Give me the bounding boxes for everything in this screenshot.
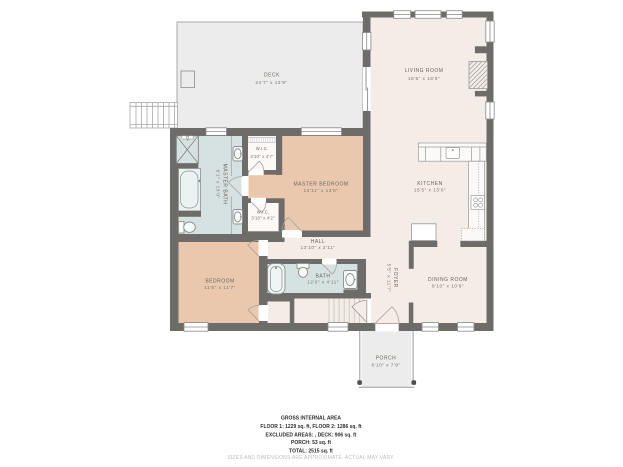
svg-text:BATH: BATH (316, 274, 331, 280)
svg-text:11'8" x 11'7": 11'8" x 11'7" (204, 285, 235, 291)
svg-text:3'10" x 4'7": 3'10" x 4'7" (250, 154, 274, 159)
svg-text:PORCH: 53 sq. ft: PORCH: 53 sq. ft (291, 440, 331, 446)
svg-text:BEDROOM: BEDROOM (205, 279, 234, 285)
svg-text:LIVING ROOM: LIVING ROOM (405, 68, 444, 74)
svg-text:FOYER: FOYER (392, 268, 398, 288)
svg-text:SIZES AND DIMENSIONS ARE APPRO: SIZES AND DIMENSIONS ARE APPROXIMATE, AC… (227, 455, 394, 461)
svg-text:MASTER BEDROOM: MASTER BEDROOM (293, 182, 348, 188)
svg-text:12'0" x 4'11": 12'0" x 4'11" (307, 280, 339, 286)
svg-text:HALL: HALL (311, 239, 326, 245)
svg-text:15'5" x 16'9": 15'5" x 16'9" (408, 76, 440, 82)
svg-text:9'1" x 13'0": 9'1" x 13'0" (215, 169, 221, 198)
svg-text:DECK: DECK (264, 73, 280, 79)
svg-text:3'10" x 4'2": 3'10" x 4'2" (251, 216, 275, 221)
svg-text:24'7" x 13'9": 24'7" x 13'9" (255, 80, 287, 86)
svg-text:5'5" x 11'7": 5'5" x 11'7" (386, 264, 392, 293)
svg-text:MASTER BATH: MASTER BATH (222, 164, 228, 205)
svg-text:W.I.C.: W.I.C. (257, 210, 270, 215)
svg-text:13'11" x 13'0": 13'11" x 13'0" (304, 188, 339, 194)
svg-text:TOTAL: 2515 sq. ft: TOTAL: 2515 sq. ft (289, 448, 333, 454)
svg-text:15'5" x 13'0": 15'5" x 13'0" (414, 188, 446, 194)
svg-text:GROSS INTERNAL AREA: GROSS INTERNAL AREA (281, 415, 341, 421)
svg-text:9'10" x 10'8": 9'10" x 10'8" (432, 284, 464, 290)
svg-text:W.I.C.: W.I.C. (256, 146, 269, 151)
svg-text:6'10" x 7'9": 6'10" x 7'9" (371, 363, 400, 369)
svg-text:PORCH: PORCH (376, 356, 397, 362)
svg-text:EXCLUDED AREAS: , DECK: 906 sq: EXCLUDED AREAS: , DECK: 906 sq. ft (266, 432, 357, 438)
svg-text:13'10" x 2'11": 13'10" x 2'11" (301, 245, 336, 251)
svg-text:FLOOR 1: 1229 sq. ft, FLOOR 2:: FLOOR 1: 1229 sq. ft, FLOOR 2: 1286 sq. … (260, 424, 361, 430)
svg-text:KITCHEN: KITCHEN (417, 181, 442, 187)
svg-text:DINING ROOM: DINING ROOM (428, 277, 468, 283)
